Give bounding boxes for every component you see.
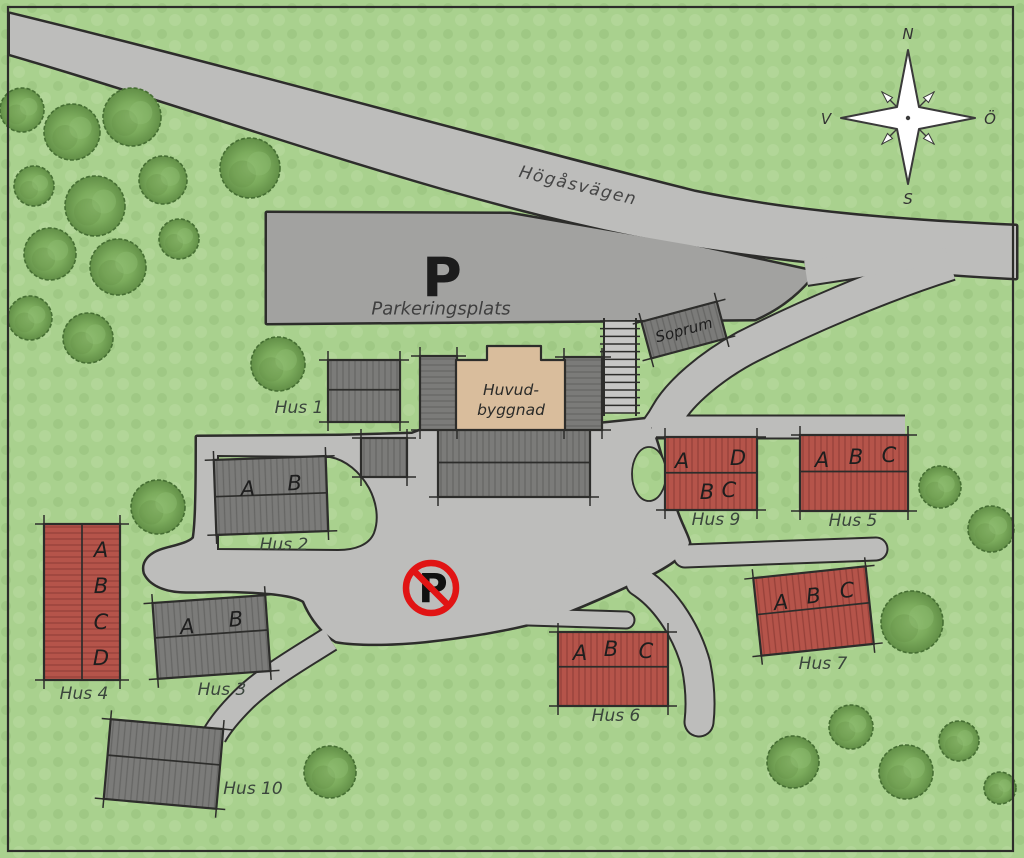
unit-label: C — [838, 578, 855, 603]
building-label: Hus 2 — [260, 535, 309, 555]
tree — [14, 166, 54, 206]
unit-label: A — [92, 538, 108, 562]
east-lane — [685, 549, 876, 556]
building-hus-5: ABC — [791, 426, 917, 520]
unit-label: B — [228, 607, 244, 632]
unit-label: B — [94, 574, 108, 598]
unit-label: C — [639, 639, 654, 663]
unit-label: B — [604, 637, 618, 661]
tree — [881, 591, 943, 653]
building-label: Hus 7 — [799, 654, 848, 674]
unit-label: B — [805, 583, 822, 608]
parking-label: Parkeringsplats — [371, 299, 510, 320]
unit-label: C — [882, 443, 897, 467]
main-building-label: byggnad — [477, 401, 545, 419]
compass-north-label: N — [902, 25, 913, 43]
tree — [90, 239, 146, 295]
building-label: Hus 5 — [829, 511, 878, 531]
unit-label: B — [287, 471, 302, 495]
building-label: Hus 1 — [275, 398, 324, 418]
tree — [304, 746, 356, 798]
unit-label: D — [93, 646, 109, 670]
tree — [939, 721, 979, 761]
tree — [63, 313, 113, 363]
tree — [44, 104, 100, 160]
tree — [220, 138, 280, 198]
stub-lane — [528, 617, 626, 620]
campus-map: Hus 1ABHus 2ABHus 3ABCDHus 4ABCHus 5ABCH… — [0, 0, 1024, 858]
parking-connector — [806, 256, 918, 273]
unit-label: C — [722, 478, 737, 502]
unit-label: B — [700, 480, 714, 504]
tree — [829, 705, 873, 749]
tree — [968, 506, 1014, 552]
tree — [103, 88, 161, 146]
tree — [767, 736, 819, 788]
tree — [879, 745, 933, 799]
building-label: Hus 4 — [60, 684, 109, 704]
compass-west-label: V — [821, 110, 833, 128]
unit-label: A — [673, 449, 689, 473]
unit-label: A — [177, 614, 195, 639]
tree — [65, 176, 125, 236]
green-island — [632, 447, 666, 501]
building-label: Hus 3 — [198, 680, 247, 700]
tree — [131, 480, 185, 534]
building-hus-9: ADBC — [656, 428, 766, 519]
building-label: Hus 10 — [223, 779, 282, 799]
tree — [919, 466, 961, 508]
unit-label: A — [238, 477, 255, 502]
unit-label: C — [94, 610, 109, 634]
unit-label: D — [730, 446, 746, 470]
compass-south-label: S — [903, 190, 913, 208]
tree — [0, 88, 44, 132]
tree — [8, 296, 52, 340]
building-label: Hus 9 — [692, 510, 741, 530]
building-main-lower — [429, 419, 599, 506]
main-building-label: Huvud- — [483, 381, 539, 399]
compass-east-label: Ö — [984, 109, 996, 128]
tree — [159, 219, 199, 259]
tree — [24, 228, 76, 280]
tree — [984, 772, 1016, 804]
unit-label: A — [571, 641, 587, 665]
building-annex-square — [352, 429, 416, 486]
tree — [251, 337, 305, 391]
building-hus-2: AB — [204, 447, 337, 544]
stairs-icon — [600, 318, 640, 416]
building-hus-1 — [319, 351, 409, 431]
unit-label: B — [849, 445, 863, 469]
unit-label: A — [813, 448, 829, 472]
building-hus-4: ABCD — [35, 515, 129, 689]
site-plan: Hus 1ABHus 2ABHus 3ABCDHus 4ABCHus 5ABCH… — [0, 0, 1024, 858]
tree — [139, 156, 187, 204]
building-label: Hus 6 — [592, 706, 641, 726]
building-hus-6: ABC — [549, 623, 677, 715]
